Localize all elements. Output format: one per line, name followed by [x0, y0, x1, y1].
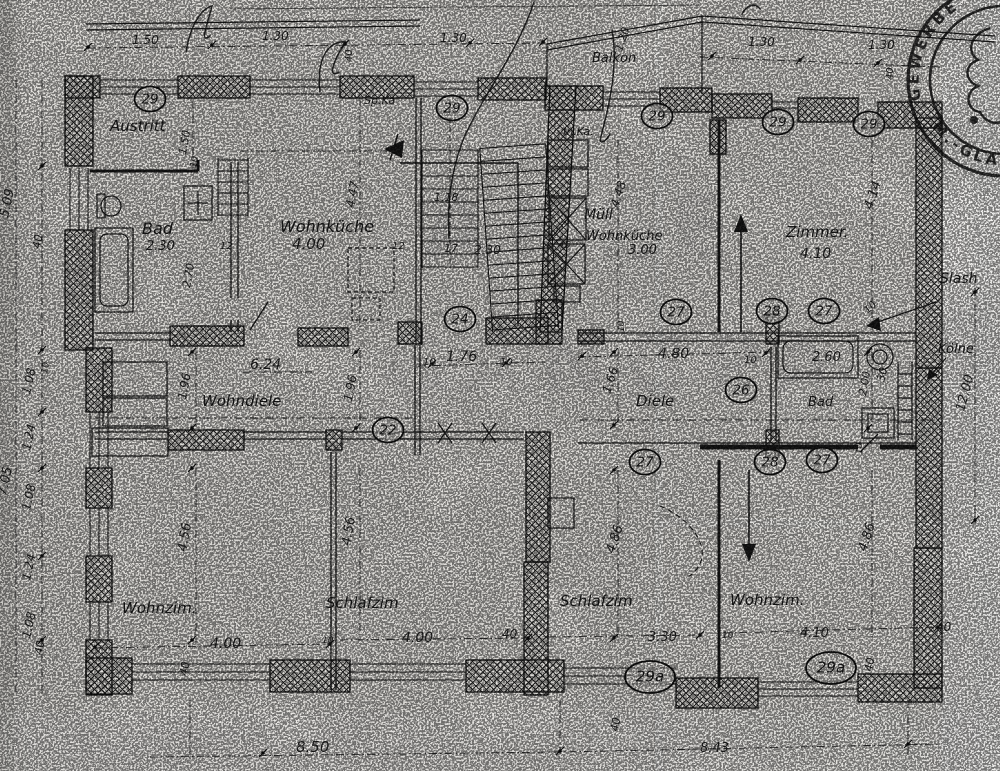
scan-blotches: [0, 0, 1000, 771]
floor-plan-canvas: AKLE GANGPA: [0, 0, 1000, 771]
scanned-floor-plan: AKLE GANGPA: [0, 0, 1000, 771]
